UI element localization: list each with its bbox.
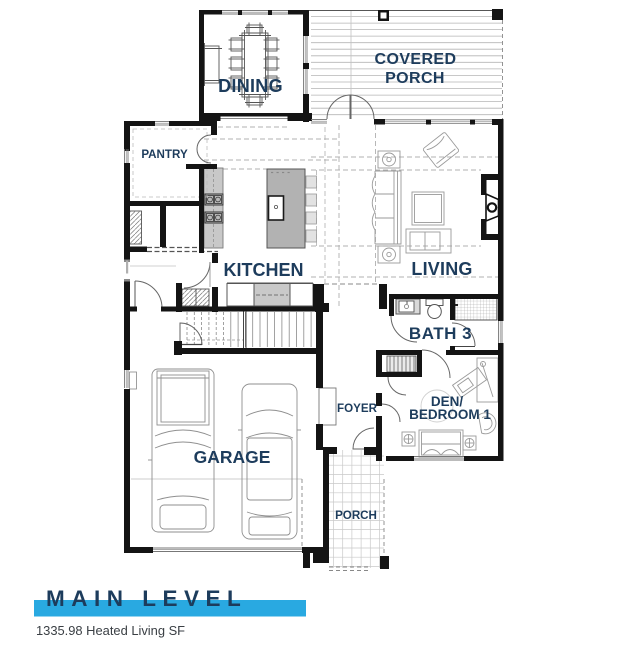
svg-text:1335.98 Heated Living SF: 1335.98 Heated Living SF <box>36 623 185 638</box>
svg-text:DINING: DINING <box>218 76 283 96</box>
svg-text:BATH 3: BATH 3 <box>409 324 472 343</box>
svg-text:PORCH: PORCH <box>385 70 445 87</box>
svg-text:BEDROOM 1: BEDROOM 1 <box>409 407 491 422</box>
svg-text:GARAGE: GARAGE <box>194 447 271 467</box>
svg-text:COVERED: COVERED <box>375 51 457 68</box>
svg-text:MAIN LEVEL: MAIN LEVEL <box>46 586 247 611</box>
svg-text:PANTRY: PANTRY <box>141 148 188 161</box>
svg-text:PORCH: PORCH <box>335 509 377 522</box>
svg-text:FOYER: FOYER <box>337 402 378 415</box>
svg-text:KITCHEN: KITCHEN <box>224 260 304 280</box>
svg-text:LIVING: LIVING <box>411 259 472 279</box>
